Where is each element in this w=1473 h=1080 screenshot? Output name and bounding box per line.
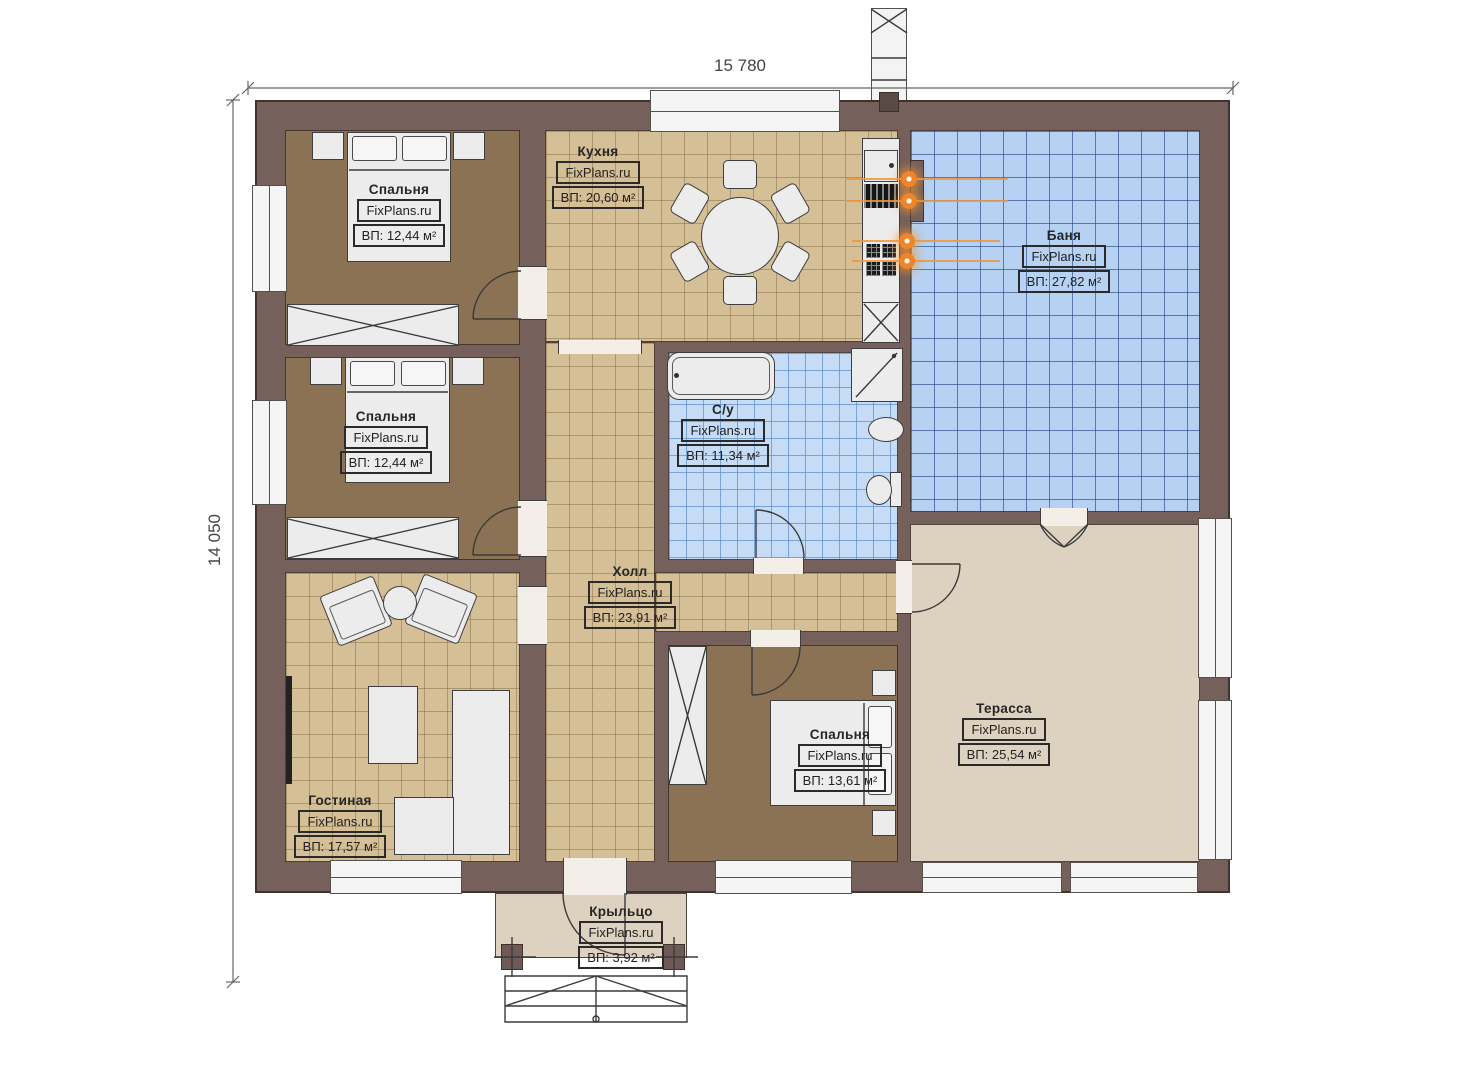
pillow [350, 361, 395, 386]
watermark: FixPlans.ru [357, 199, 440, 222]
room-name: Крыльцо [551, 904, 691, 919]
watermark: FixPlans.ru [344, 426, 427, 449]
pillow [352, 136, 397, 161]
chair [723, 160, 757, 189]
room-area: ВП: 13,61 м² [794, 769, 887, 792]
room-name: Кухня [528, 144, 668, 159]
door-gap-bedroom2 [518, 500, 547, 557]
heater-icon [899, 233, 915, 249]
label-living: Гостиная FixPlans.ru ВП: 17,57 м² [270, 793, 410, 858]
window [650, 90, 840, 132]
stove-burner [866, 244, 880, 258]
room-area: ВП: 17,57 м² [294, 835, 387, 858]
watermark: FixPlans.ru [588, 581, 671, 604]
nightstand [453, 132, 485, 160]
label-bedroom2: Спальня FixPlans.ru ВП: 12,44 м² [316, 409, 456, 474]
room-area: ВП: 20,60 м² [552, 186, 645, 209]
room-area: ВП: 3,92 м² [578, 946, 663, 969]
chimney-flue [879, 92, 899, 112]
watermark: FixPlans.ru [298, 810, 381, 833]
bathtub [667, 352, 775, 400]
heater-icon [901, 193, 917, 209]
nightstand [452, 357, 484, 385]
room-area: ВП: 11,34 м² [677, 444, 769, 467]
room-name: Терасса [934, 701, 1074, 716]
coffee-table [368, 686, 418, 764]
stove-burner [866, 262, 880, 276]
door-gap-terrace [896, 560, 912, 614]
watermark: FixPlans.ru [681, 419, 764, 442]
opening-kitchen-hall [558, 340, 642, 354]
room-name: Спальня [329, 182, 469, 197]
window [922, 862, 1062, 893]
wardrobe [287, 304, 459, 346]
label-terrace: Терасса FixPlans.ru ВП: 25,54 м² [934, 701, 1074, 766]
room-name: Баня [994, 228, 1134, 243]
wardrobe [668, 646, 707, 785]
door-gap-bedroom1 [518, 266, 547, 320]
chair [723, 276, 757, 305]
door-gap-entrance [563, 858, 627, 895]
room-area: ВП: 27,82 м² [1018, 270, 1111, 293]
stove-burner [882, 244, 896, 258]
room-area: ВП: 12,44 м² [340, 451, 433, 474]
watermark: FixPlans.ru [798, 744, 881, 767]
nightstand [872, 670, 896, 696]
pillow [401, 361, 446, 386]
nightstand [310, 357, 342, 385]
watermark: FixPlans.ru [579, 921, 662, 944]
label-bedroom1: Спальня FixPlans.ru ВП: 12,44 м² [329, 182, 469, 247]
label-porch: Крыльцо FixPlans.ru ВП: 3,92 м² [551, 904, 691, 969]
door-gap-banya-terrace [1040, 508, 1088, 526]
room-name: Спальня [316, 409, 456, 424]
side-table [383, 586, 417, 620]
label-kitchen: Кухня FixPlans.ru ВП: 20,60 м² [528, 144, 668, 209]
dimension-top: 15 780 [690, 56, 790, 76]
door-gap-su [753, 558, 804, 574]
fridge [862, 302, 900, 343]
wardrobe [287, 517, 459, 559]
room-area: ВП: 25,54 м² [958, 743, 1051, 766]
label-hall: Холл FixPlans.ru ВП: 23,91 м² [560, 564, 700, 629]
room-banya [910, 130, 1200, 512]
nightstand [872, 810, 896, 836]
door-gap-bedroom3 [750, 630, 801, 647]
window [252, 185, 287, 292]
room-area: ВП: 23,91 м² [584, 606, 677, 629]
window [252, 400, 287, 505]
dining-table [701, 197, 779, 275]
nightstand [312, 132, 344, 160]
shower [851, 348, 903, 402]
heater-icon [899, 253, 915, 269]
window [1198, 518, 1232, 678]
label-su: С/у FixPlans.ru ВП: 11,34 м² [653, 402, 793, 467]
opening-living [518, 586, 547, 645]
tv [286, 676, 292, 784]
label-bedroom3: Спальня FixPlans.ru ВП: 13,61 м² [770, 727, 910, 792]
bath-faucet [674, 373, 679, 378]
sink [868, 417, 904, 442]
faucet [889, 163, 894, 168]
heater-wall [910, 160, 924, 222]
chimney [871, 8, 907, 102]
room-name: Спальня [770, 727, 910, 742]
stove-burner [882, 262, 896, 276]
porch-column [501, 944, 523, 970]
floor-plan-canvas: 15 780 14 050 [0, 0, 1473, 1080]
room-area: ВП: 12,44 м² [353, 224, 446, 247]
window [330, 860, 462, 894]
oven [864, 184, 898, 208]
toilet [866, 475, 892, 505]
watermark: FixPlans.ru [962, 718, 1045, 741]
room-name: Гостиная [270, 793, 410, 808]
watermark: FixPlans.ru [1022, 245, 1105, 268]
window [1070, 862, 1198, 893]
room-name: Холл [560, 564, 700, 579]
room-name: С/у [653, 402, 793, 417]
sofa [452, 690, 510, 855]
window [1198, 700, 1232, 860]
label-banya: Баня FixPlans.ru ВП: 27,82 м² [994, 228, 1134, 293]
heater-icon [901, 171, 917, 187]
pillow [402, 136, 447, 161]
room-terrace [910, 524, 1200, 862]
dimension-left: 14 050 [205, 490, 225, 590]
watermark: FixPlans.ru [556, 161, 639, 184]
window [715, 860, 852, 894]
